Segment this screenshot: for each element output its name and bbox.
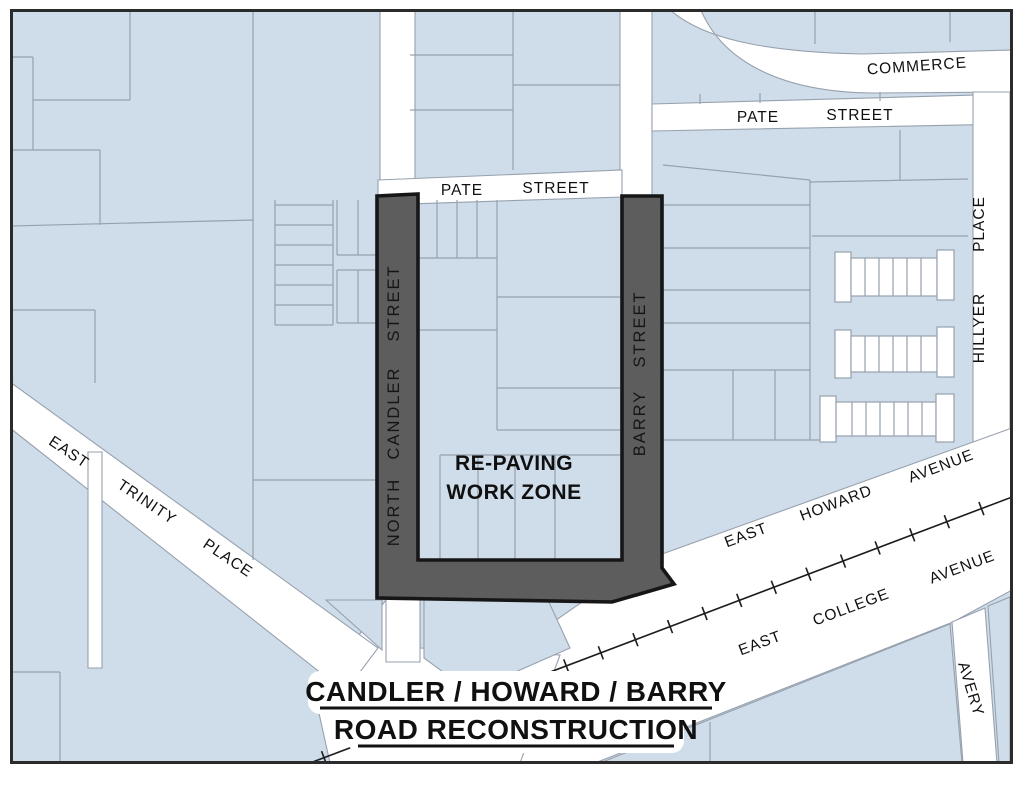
street-north-vertical-right [620,10,652,197]
street-narrow-vertical [88,452,102,668]
label-north-candler-w1: NORTH [385,478,403,546]
work-zone-label-line1: RE-PAVING [455,452,573,475]
street-stub-below-zone [386,592,420,662]
street-north-vertical-left [380,10,415,203]
work-zone-map: STREET CANDLER NORTH STREET BARRY COMMER… [0,0,1024,787]
label-hillyer-w1: HILLYER [971,293,988,363]
label-hillyer-w2: PLACE [971,196,988,252]
label-barry-w2: STREET [631,290,649,367]
label-pate-lower-w2: STREET [522,180,589,197]
title-line1: CANDLER / HOWARD / BARRY [305,676,727,707]
map-canvas: STREET CANDLER NORTH STREET BARRY COMMER… [0,0,1024,787]
map-title: CANDLER / HOWARD / BARRY ROAD RECONSTRUC… [305,671,727,753]
rowhouse-buildings [820,250,954,442]
label-pate-upper-w2: STREET [826,107,893,124]
label-north-candler-w3: STREET [385,264,403,341]
label-north-candler-w2: CANDLER [385,367,403,460]
work-zone-label-line2: WORK ZONE [446,481,581,504]
street-hillyer [973,92,1010,470]
label-barry-w1: BARRY [631,390,649,457]
label-pate-lower-w1: PATE [441,182,483,199]
title-line2: ROAD RECONSTRUCTION [334,714,698,745]
label-pate-upper-w1: PATE [737,109,779,126]
